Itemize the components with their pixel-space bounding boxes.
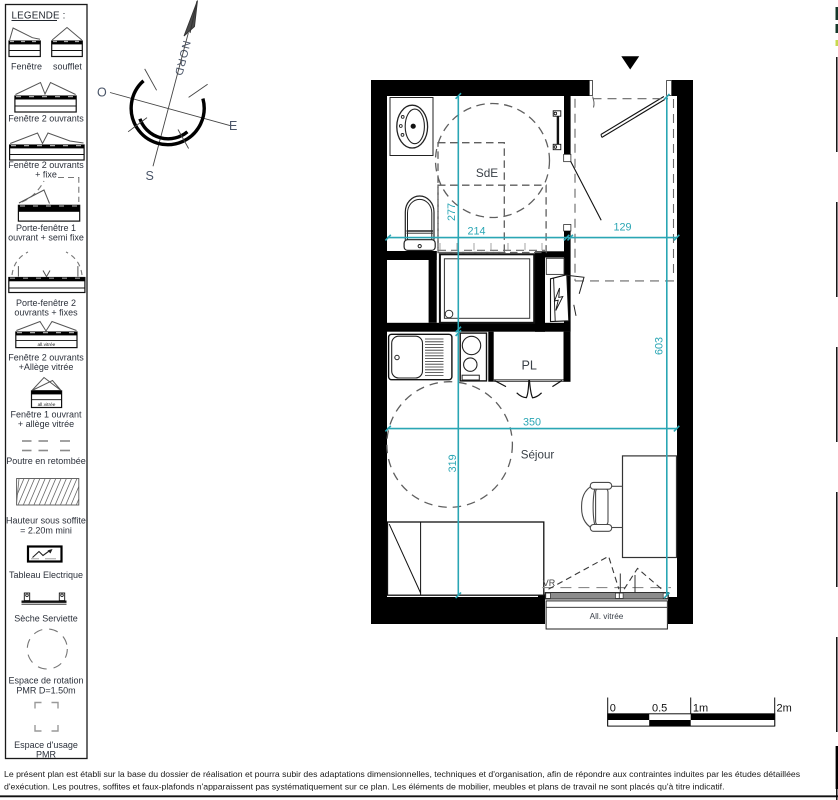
svg-text:1m: 1m (693, 703, 708, 715)
svg-text:S: S (146, 169, 154, 183)
svg-text:Fenêtre 2 ouvrants: Fenêtre 2 ouvrants (8, 352, 84, 362)
svg-text:all.vitrée: all.vitrée (37, 342, 55, 348)
svg-text:O: O (97, 86, 107, 100)
svg-text:PL: PL (521, 358, 536, 372)
svg-text:Sèche Serviette: Sèche Serviette (14, 613, 78, 623)
svg-text:Hauteur sous soffite: Hauteur sous soffite (6, 515, 86, 525)
svg-text:= 2.20m mini: = 2.20m mini (20, 525, 72, 535)
svg-text:0.5: 0.5 (652, 703, 667, 715)
svg-text:E: E (229, 119, 237, 133)
svg-text:ouvrants + fixes: ouvrants + fixes (14, 307, 78, 317)
svg-text:All. vitrée: All. vitrée (590, 612, 624, 621)
svg-text:Séjour: Séjour (521, 449, 555, 462)
svg-text:Poutre en retombée: Poutre en retombée (6, 456, 86, 466)
svg-text:0: 0 (610, 703, 616, 715)
svg-text:Fenêtre: Fenêtre (11, 62, 42, 72)
svg-text:Le présent plan est établi sur: Le présent plan est établi sur la base d… (4, 769, 801, 779)
svg-text:Porte-fenêtre 1: Porte-fenêtre 1 (16, 223, 76, 233)
svg-text:PMR: PMR (36, 749, 57, 759)
svg-text:350: 350 (523, 416, 541, 428)
svg-text:PMR D=1.50m: PMR D=1.50m (16, 685, 75, 695)
svg-text:Espace d'usage: Espace d'usage (14, 740, 78, 750)
svg-text:Fenêtre 2 ouvrants: Fenêtre 2 ouvrants (8, 160, 84, 170)
svg-text:603: 603 (654, 337, 666, 355)
svg-text:2m: 2m (777, 703, 792, 715)
svg-text:LEGENDE :: LEGENDE : (12, 10, 66, 21)
svg-text:214: 214 (467, 225, 485, 237)
svg-text:Tableau Electrique: Tableau Electrique (9, 570, 83, 580)
svg-text:277: 277 (446, 203, 458, 221)
svg-text:129: 129 (613, 221, 631, 233)
svg-text:+Allège vitrée: +Allège vitrée (19, 362, 74, 372)
svg-text:Porte-fenêtre 2: Porte-fenêtre 2 (16, 298, 76, 308)
svg-text:+ fixe: + fixe (35, 169, 57, 179)
svg-text:319: 319 (447, 454, 459, 472)
svg-text:soufflet: soufflet (53, 62, 82, 72)
svg-text:Espace de rotation: Espace de rotation (8, 675, 83, 685)
svg-text:SdE: SdE (476, 166, 498, 180)
svg-text:ouvrant + semi fixe: ouvrant + semi fixe (8, 232, 84, 242)
svg-text:Fenêtre 2 ouvrants: Fenêtre 2 ouvrants (8, 114, 84, 124)
svg-text:all.vitrée: all.vitrée (38, 402, 56, 408)
svg-text:d'exécution. Les poutres, soff: d'exécution. Les poutres, soffites et fa… (4, 782, 725, 792)
svg-text:+ allège vitrée: + allège vitrée (18, 419, 74, 429)
svg-text:VR: VR (543, 578, 556, 588)
svg-text:Fenêtre 1 ouvrant: Fenêtre 1 ouvrant (10, 409, 82, 419)
